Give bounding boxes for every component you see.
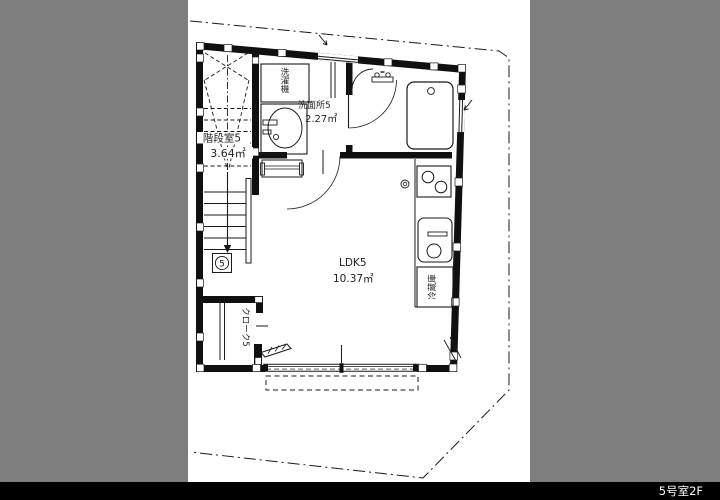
floor-plan-image: 階段室5 3.64㎡ 5 洗濯機 洗面所5 2.27㎡ (0, 0, 720, 500)
screenshot-canvas: 階段室5 3.64㎡ 5 洗濯機 洗面所5 2.27㎡ (0, 0, 720, 500)
bath-ldk-wall (340, 152, 452, 159)
stairwell-area: 3.64㎡ (210, 147, 246, 160)
washing-machine-label: 洗濯機 (281, 67, 290, 95)
washroom-area: 2.27㎡ (305, 113, 337, 125)
caption-bar-bg (0, 482, 720, 500)
ldk-label: LDK5 (339, 257, 367, 269)
stair-marker-number: 5 (219, 259, 225, 269)
closet-wall-stub (256, 303, 263, 313)
right-window-opening (456, 100, 465, 132)
closet-label: クローク5 (240, 307, 250, 346)
washroom-bath-wall-lower (346, 145, 353, 159)
caption-bar: 5号室2F (0, 482, 720, 500)
room-caption: 5号室2F (659, 484, 703, 498)
plan-paper (188, 0, 530, 482)
washroom-label: 洗面所5 (298, 99, 331, 111)
washroom-bath-wall-upper (346, 62, 353, 95)
washroom-ldk-wall (259, 152, 287, 159)
stairwell-label: 階段室5 (203, 132, 241, 145)
ldk-area: 10.37㎡ (333, 273, 374, 285)
closet-wall (203, 296, 263, 303)
refrigerator-label: 冷蔵庫 (427, 274, 438, 300)
window-mullion (340, 363, 344, 373)
stair-partition-wall (252, 54, 259, 195)
